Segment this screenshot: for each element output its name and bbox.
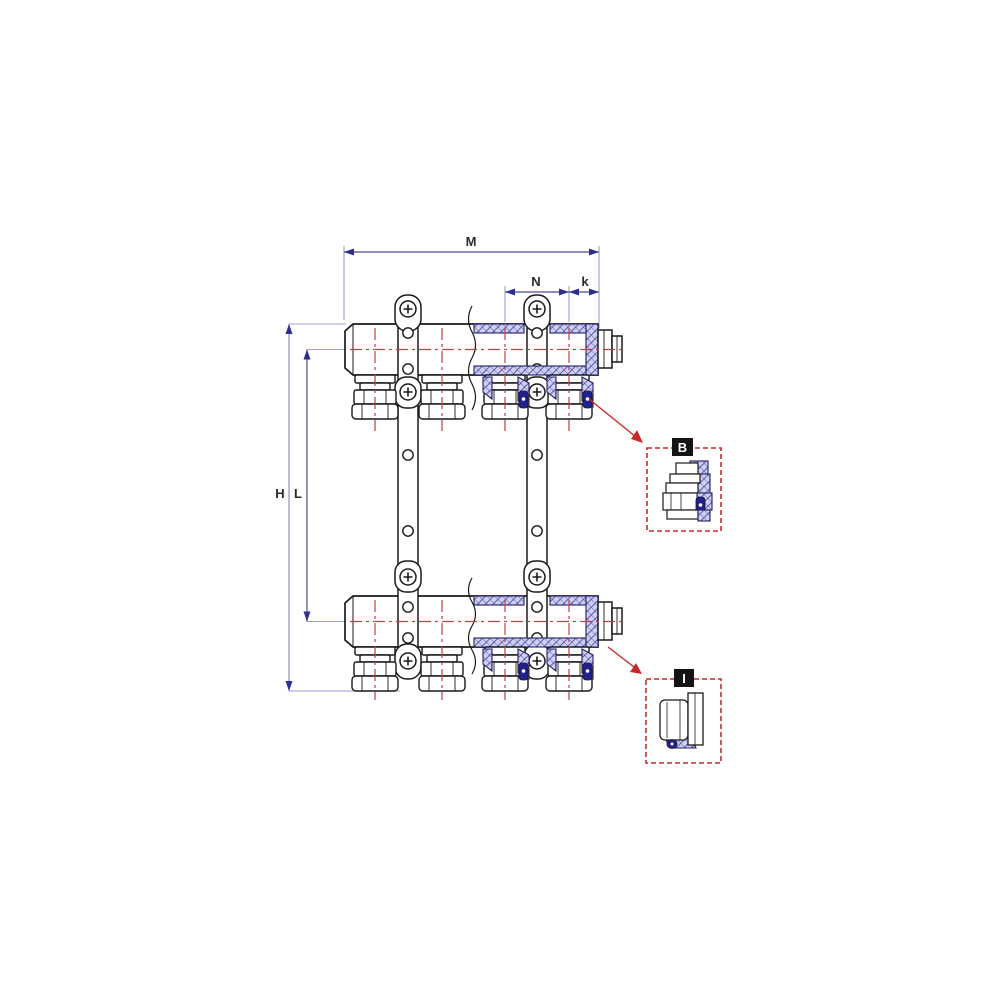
outlet-fittings-bottom [352, 647, 593, 691]
bracket-screw-icon [400, 653, 416, 669]
dimension-l-label: L [294, 486, 302, 501]
strap-hole [403, 602, 413, 612]
strap-hole [403, 633, 413, 643]
drawing-canvas: M N k H L [0, 0, 1000, 1000]
dimension-l: L [294, 350, 346, 622]
dimension-m-label: M [466, 234, 477, 249]
bracket-screw-icon [529, 569, 545, 585]
strap-hole [532, 526, 542, 536]
manifold-technical-drawing: M N k H L [0, 0, 1000, 1000]
strap-hole [403, 364, 413, 374]
bracket-screw-icon [529, 384, 545, 400]
detail-b-chip-label: B [678, 440, 687, 455]
bracket-screw-icon [529, 653, 545, 669]
strap-hole [532, 450, 542, 460]
detail-b-drawing [663, 461, 712, 521]
dimension-m: M [344, 234, 599, 328]
outlet-fittings-top [352, 375, 593, 419]
strap-hole [403, 526, 413, 536]
strap-hole [532, 328, 542, 338]
callout-arrowhead-icon [631, 430, 643, 443]
strap-hole [403, 328, 413, 338]
bracket-screw-icon [400, 384, 416, 400]
dimension-k-label: k [581, 274, 589, 289]
bracket-screw-icon [400, 569, 416, 585]
detail-callout-i: I [608, 647, 721, 763]
dimension-h-label: H [275, 486, 284, 501]
dimension-k: k [569, 274, 599, 296]
detail-i-drawing [660, 693, 703, 749]
dimension-n-label: N [531, 274, 540, 289]
strap-hole [403, 450, 413, 460]
strap-hole [532, 602, 542, 612]
detail-i-chip-label: I [682, 671, 686, 686]
bracket-screw-icon [529, 301, 545, 317]
bracket-screw-icon [400, 301, 416, 317]
detail-callout-b: B [589, 399, 721, 531]
